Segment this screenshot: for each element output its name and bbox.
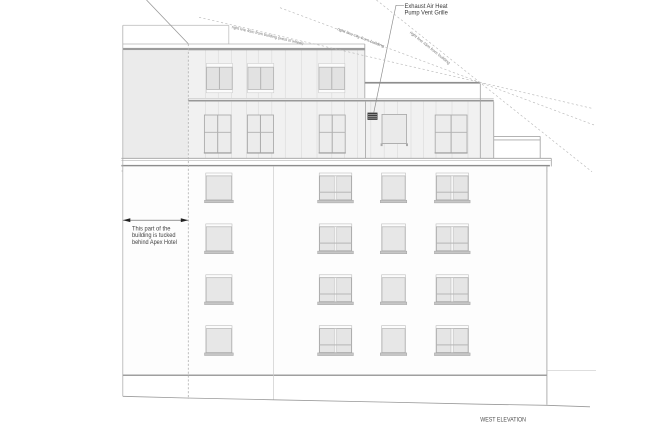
svg-text:WEST ELEVATION: WEST ELEVATION [480,417,526,424]
svg-text:Exhaust Air Heat: Exhaust Air Heat [405,4,448,10]
svg-text:Pump Vent Grille: Pump Vent Grille [405,10,449,16]
svg-text:behind Apex Hotel: behind Apex Hotel [132,239,177,246]
